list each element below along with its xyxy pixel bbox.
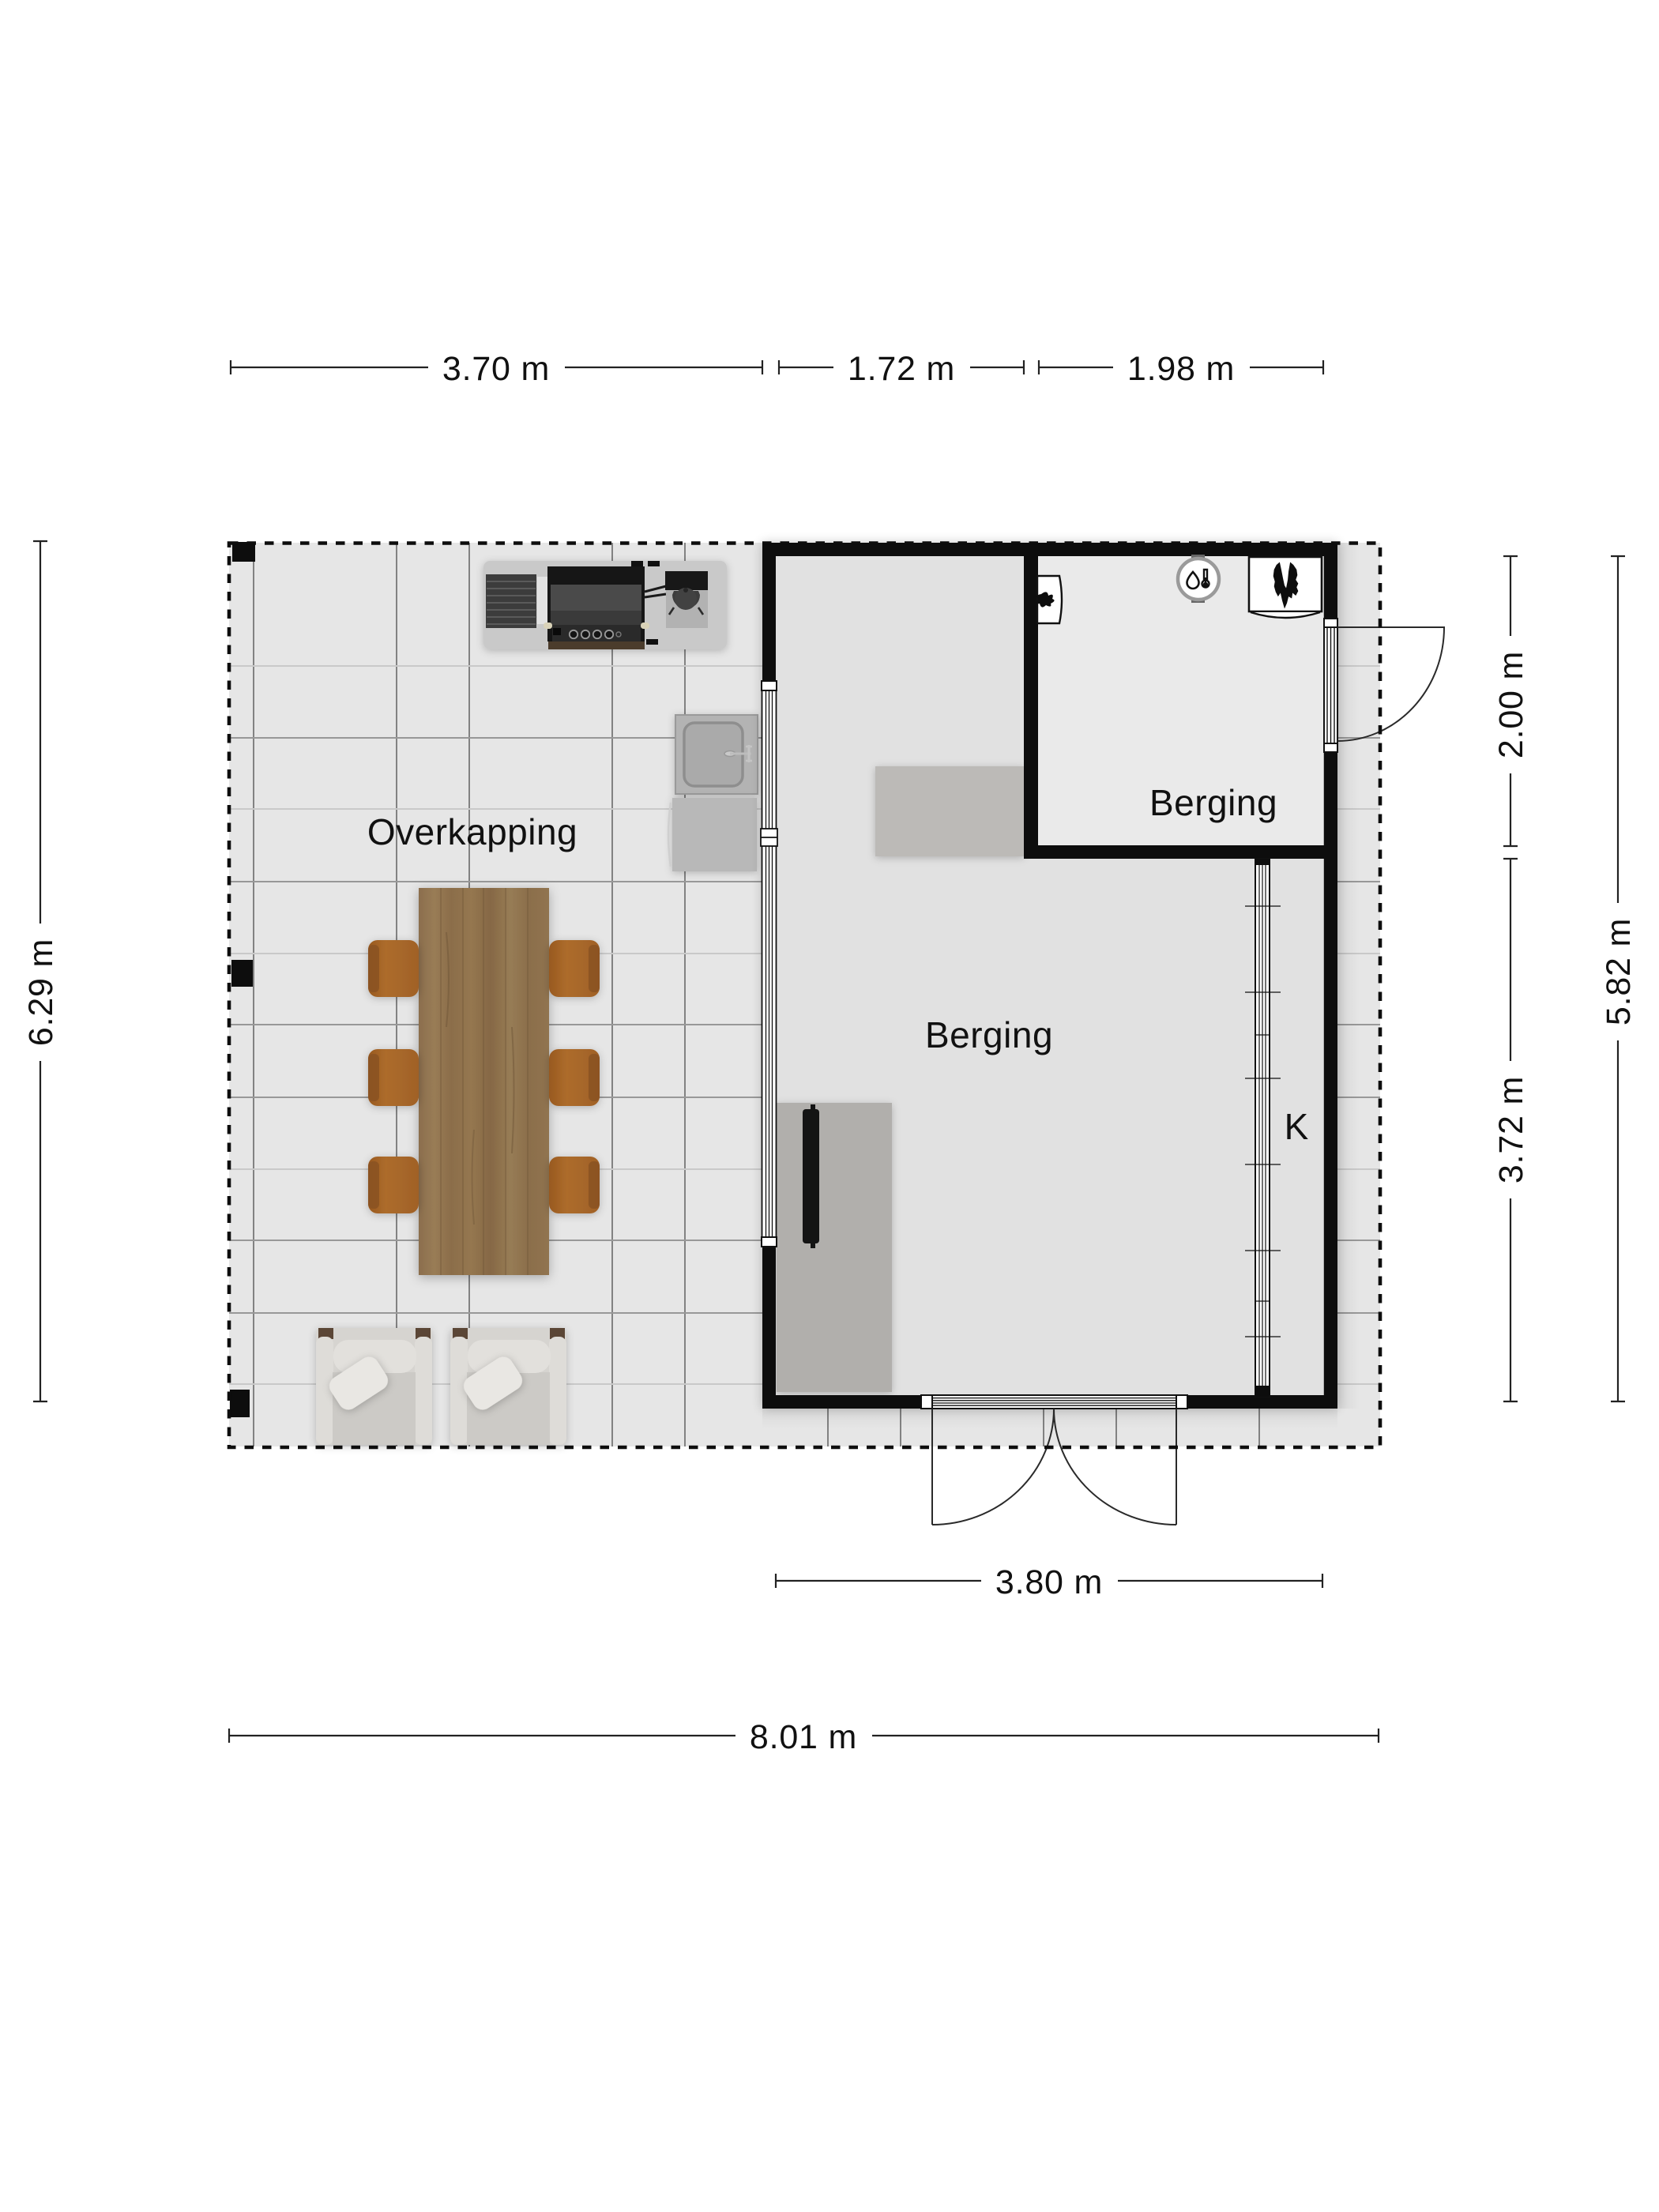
svg-text:5.82 m: 5.82 m <box>1600 918 1638 1025</box>
svg-text:Berging: Berging <box>1149 782 1277 823</box>
svg-text:3.80 m: 3.80 m <box>995 1563 1103 1601</box>
svg-text:6.29 m: 6.29 m <box>22 939 60 1046</box>
svg-text:Overkapping: Overkapping <box>367 811 577 852</box>
svg-text:8.01 m: 8.01 m <box>750 1718 857 1756</box>
svg-text:3.70 m: 3.70 m <box>442 350 550 388</box>
svg-text:1.98 m: 1.98 m <box>1127 350 1235 388</box>
svg-text:K: K <box>1285 1106 1309 1147</box>
svg-text:3.72 m: 3.72 m <box>1492 1076 1530 1183</box>
svg-text:1.72 m: 1.72 m <box>848 350 955 388</box>
svg-text:2.00 m: 2.00 m <box>1492 651 1530 758</box>
svg-text:Berging: Berging <box>925 1014 1053 1055</box>
